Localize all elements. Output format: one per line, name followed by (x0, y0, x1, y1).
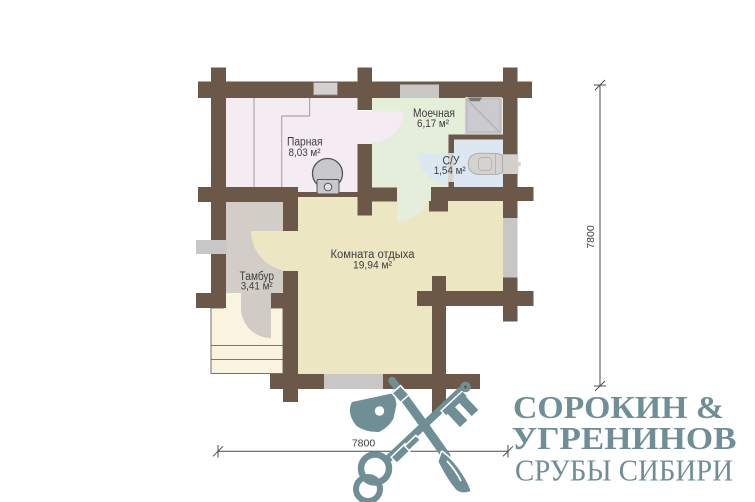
svg-text:6,17 м²: 6,17 м² (417, 118, 449, 130)
svg-text:7800: 7800 (352, 438, 376, 450)
svg-text:УГРЕНИНОВ: УГРЕНИНОВ (512, 420, 737, 456)
svg-text:3,41 м²: 3,41 м² (241, 280, 273, 292)
svg-text:7800: 7800 (585, 225, 597, 249)
svg-text:1,54 м²: 1,54 м² (434, 165, 466, 177)
svg-text:8,03 м²: 8,03 м² (289, 147, 321, 159)
svg-text:СРУБЫ СИБИРИ: СРУБЫ СИБИРИ (515, 453, 733, 488)
svg-text:19,94 м²: 19,94 м² (353, 260, 392, 272)
